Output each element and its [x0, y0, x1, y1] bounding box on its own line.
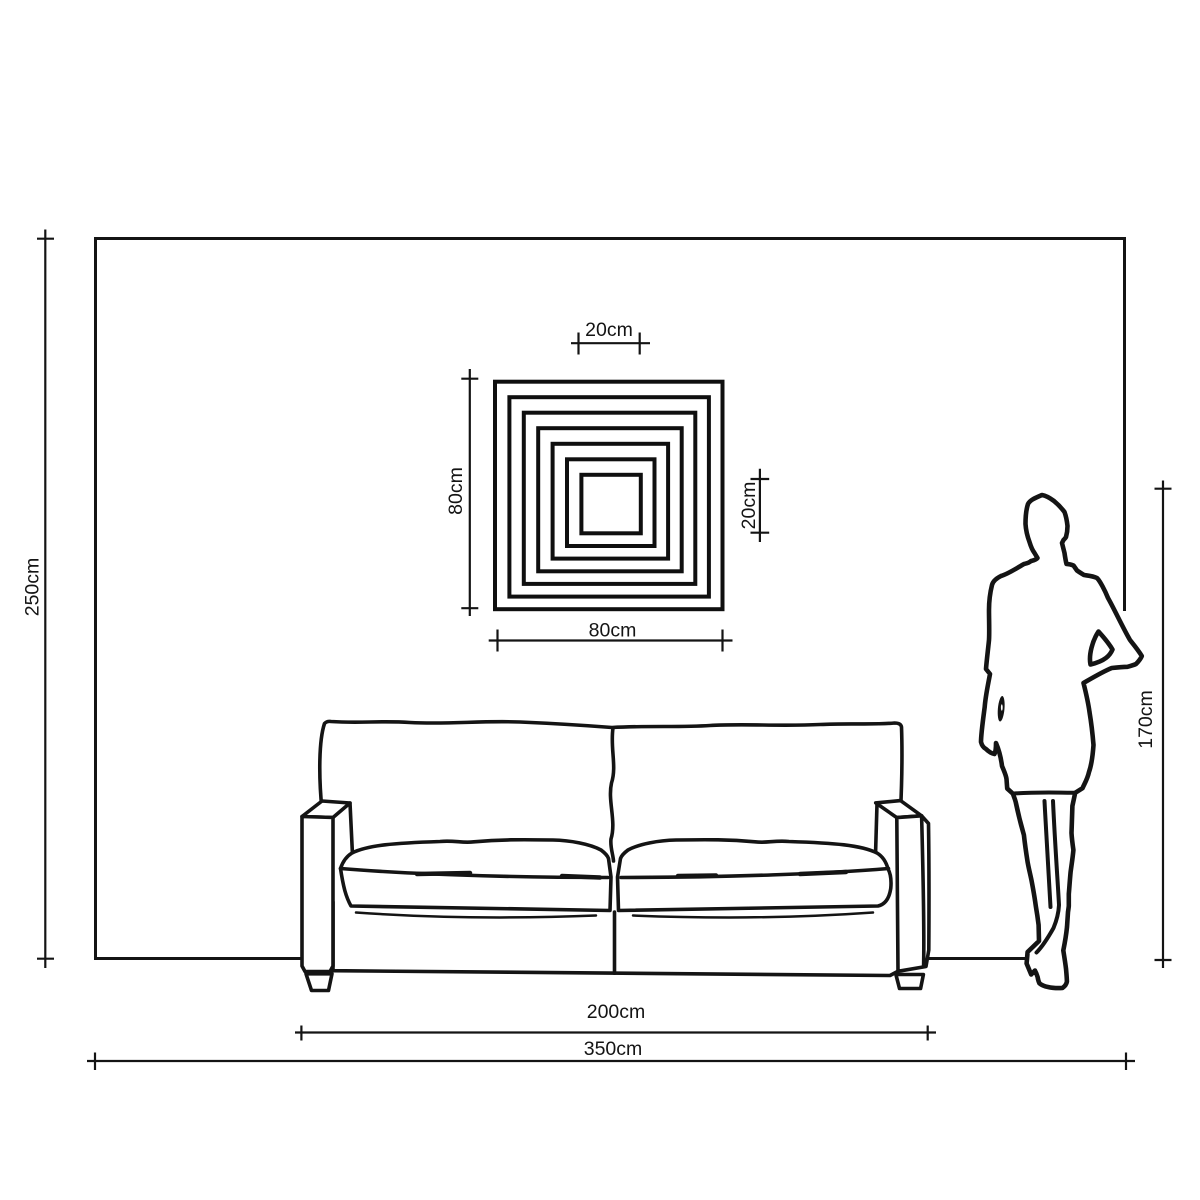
svg-text:80cm: 80cm	[589, 620, 637, 642]
svg-text:350cm: 350cm	[584, 1038, 643, 1060]
svg-text:20cm: 20cm	[738, 482, 760, 530]
svg-text:80cm: 80cm	[445, 467, 467, 515]
svg-text:200cm: 200cm	[587, 1001, 646, 1023]
svg-text:250cm: 250cm	[22, 558, 44, 617]
svg-text:170cm: 170cm	[1135, 690, 1157, 749]
svg-text:20cm: 20cm	[585, 319, 633, 341]
